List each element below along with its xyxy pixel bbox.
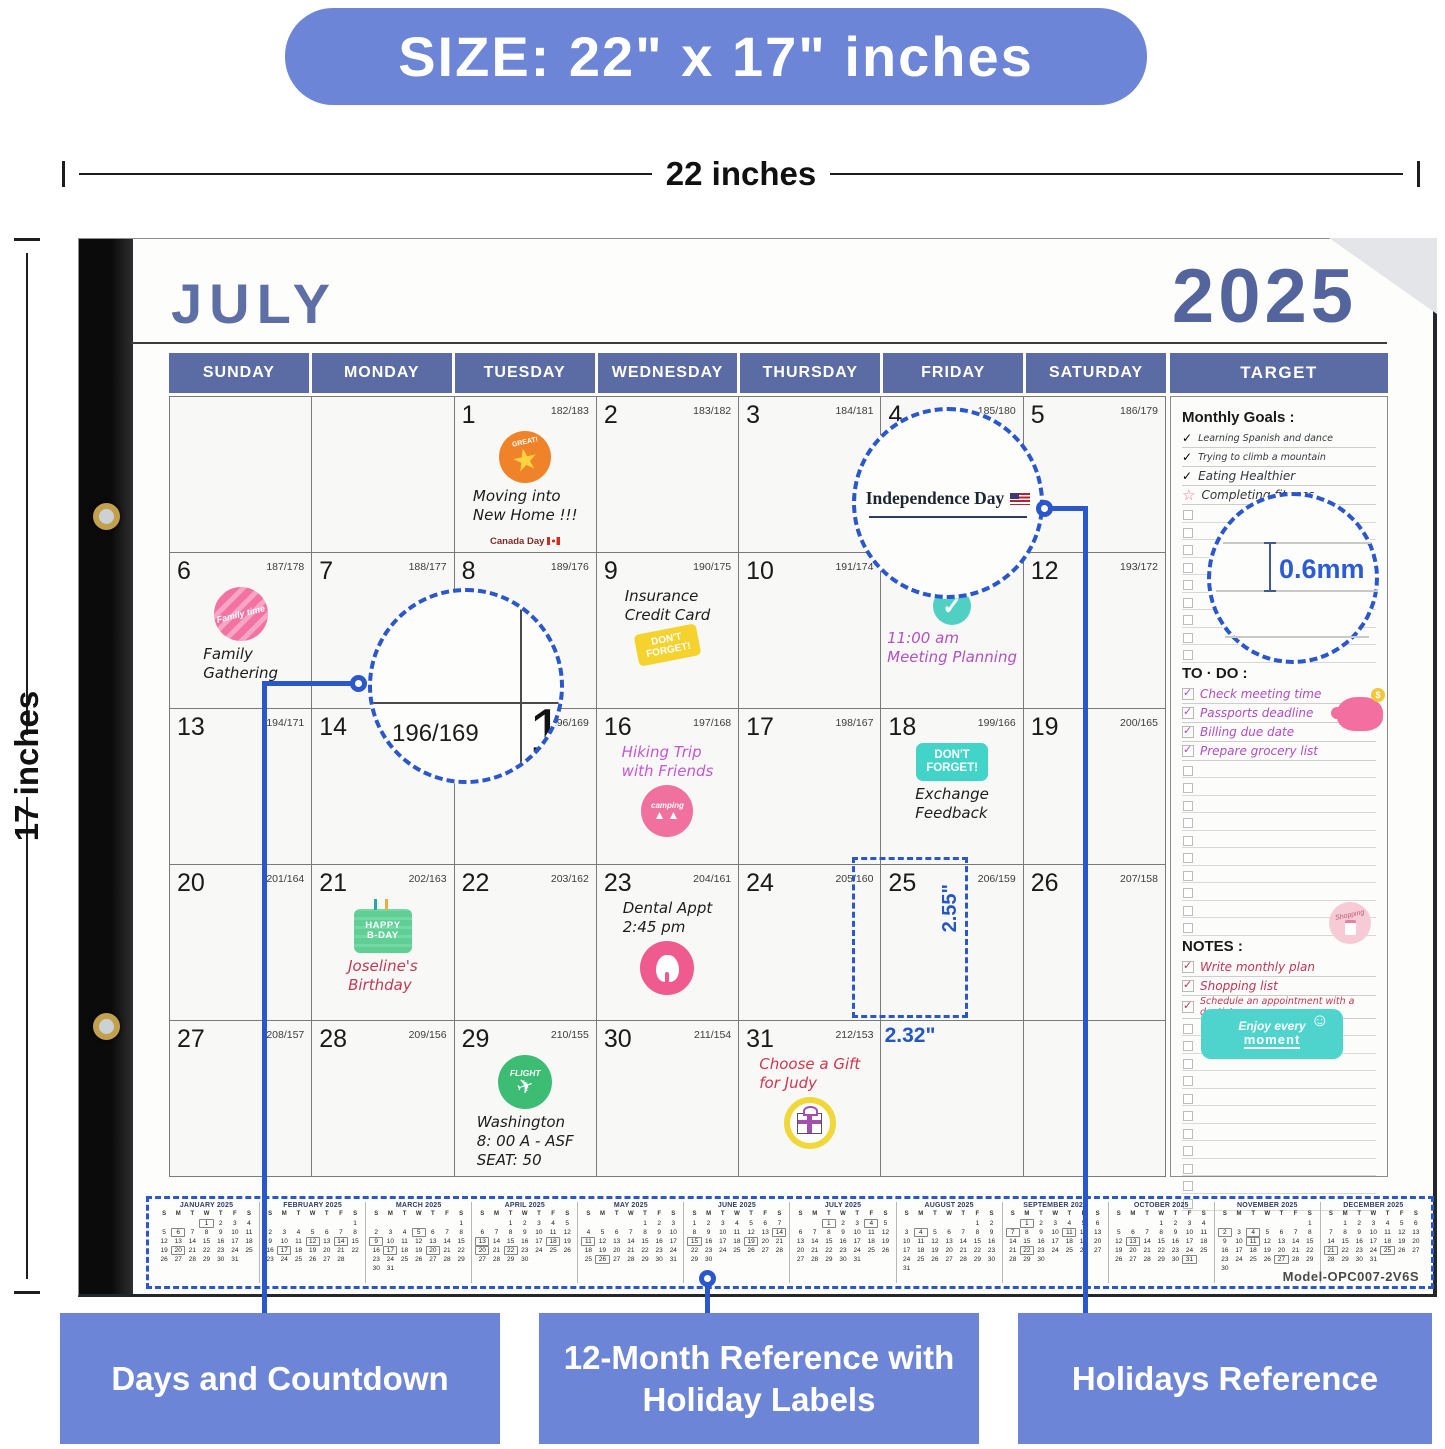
mini-date: 22 [1020,1246,1034,1255]
mini-date: 15 [348,1237,362,1246]
mini-date: 17 [228,1237,242,1246]
ruled-line [1225,636,1369,638]
mini-date: 14 [956,1237,970,1246]
width-dimension-label: 22 inches [666,155,816,193]
mini-date: 15 [1303,1237,1317,1246]
countdown-label: 200/165 [1120,717,1158,729]
ruler-line [26,253,28,735]
mini-date: 7 [440,1228,454,1237]
countdown-magnifier-circle: 196/169 16 [368,588,564,784]
mini-date: 25 [730,1246,744,1255]
mini-date: 28 [1006,1255,1020,1264]
mini-date: 2 [652,1219,666,1228]
mini-date: 24 [228,1246,242,1255]
mini-date: 24 [277,1255,291,1264]
countdown-label: 191/174 [835,561,873,573]
mini-month-title: JUNE 2025 [687,1202,786,1209]
mini-blank [581,1219,595,1228]
mini-date: 7 [1289,1228,1303,1237]
weekday-header-friday: FRIDAY [883,353,1023,393]
mini-dow: M [277,1210,291,1219]
mini-month-title: MAY 2025 [581,1202,680,1209]
mini-date: 9 [518,1228,532,1237]
mini-date: 6 [475,1228,489,1237]
mini-date: 12 [412,1237,426,1246]
mini-date: 22 [504,1246,518,1255]
mini-date: 27 [793,1255,807,1264]
mini-blank [475,1219,489,1228]
mini-date: 24 [666,1246,680,1255]
mini-date: 17 [1232,1246,1246,1255]
todo-item: ✓Prepare grocery list [1182,742,1376,761]
mini-date: 26 [1395,1246,1409,1255]
mini-date: 3 [532,1219,546,1228]
mini-date: 4 [291,1228,305,1237]
mini-date: 1 [1338,1219,1352,1228]
mini-date: 29 [638,1255,652,1264]
mini-date: 28 [185,1255,199,1264]
title-divider [131,342,1387,344]
mini-dow: S [984,1210,998,1219]
mini-date: 30 [214,1255,228,1264]
day-cell-18: 18199/166DON'TFORGET!ExchangeFeedback [881,709,1022,864]
day-cell-17: 17198/167 [739,709,880,864]
mini-date: 2 [369,1228,383,1237]
countdown-label: 198/167 [835,717,873,729]
mini-date: 17 [1048,1237,1062,1246]
mini-date: 11 [1197,1228,1211,1237]
callout-anchor-dot [350,675,367,692]
day-cell-empty [312,397,453,552]
mini-date: 20 [610,1246,624,1255]
mini-date: 27 [1091,1246,1105,1255]
day-cell-20: 20201/164 [170,865,311,1020]
mini-date: 14 [1289,1237,1303,1246]
mini-dow: M [595,1210,609,1219]
mini-date: 14 [1006,1237,1020,1246]
mini-blank [412,1219,426,1228]
mini-date: 2 [836,1219,850,1228]
checked-checkbox-icon: ✓ [1182,980,1194,992]
height-dimension: 17 inches [4,238,50,1294]
mini-date: 14 [1324,1237,1338,1246]
mini-date: 13 [426,1237,440,1246]
mini-month-title: DECEMBER 2025 [1324,1202,1423,1209]
mini-blank [1324,1219,1338,1228]
mini-date: 2 [702,1219,716,1228]
day-cell-5: 5186/179 [1024,397,1165,552]
mini-date: 23 [836,1246,850,1255]
mini-dow: W [624,1210,638,1219]
mini-dow: S [687,1210,701,1219]
width-dimension: 22 inches [62,156,1420,192]
mini-month-april: APRIL 2025SMTWTFS12345678910111213141516… [472,1202,578,1283]
mini-dow: T [1140,1210,1154,1219]
mini-date: 19 [560,1237,574,1246]
mini-date: 23 [518,1246,532,1255]
mini-date: 7 [772,1219,786,1228]
day-number: 12 [1031,557,1059,586]
empty-checkbox-line [1182,1071,1376,1089]
day-cell-29: 29210/155FLIGHT✈Washington8: 00 A - ASFS… [455,1021,596,1176]
mini-date: 2 [1218,1228,1232,1237]
mini-date: 14 [185,1237,199,1246]
mini-date: 16 [836,1237,850,1246]
model-number: Model-OPC007-2V6S [1283,1269,1419,1284]
mini-date: 12 [1260,1237,1274,1246]
mini-date: 30 [836,1255,850,1264]
mini-date: 20 [1126,1246,1140,1255]
callout-connector-line [262,681,354,686]
mini-date: 17 [850,1237,864,1246]
height-dimension-label: 17 inches [8,691,46,841]
day-number: 13 [177,713,205,742]
day-cell-27: 27208/157 [170,1021,311,1176]
mini-date: 4 [1246,1228,1260,1237]
mini-date: 30 [1218,1264,1232,1273]
mini-month-october: OCTOBER 2025SMTWTFS123456789101112131415… [1109,1202,1215,1283]
countdown-label: 207/158 [1120,873,1158,885]
mini-date: 11 [581,1237,595,1246]
event-line: Family [203,645,278,664]
mini-dow: S [454,1210,468,1219]
mini-dow: M [1020,1210,1034,1219]
enjoy-moment-sticker: Enjoy everymoment☺ [1201,1009,1343,1059]
mini-date: 22 [1338,1246,1352,1255]
mini-date: 27 [1409,1246,1423,1255]
mini-month-title: OCTOBER 2025 [1112,1202,1211,1209]
mini-date: 15 [199,1237,213,1246]
enjoy-text: Enjoy every [1238,1019,1305,1033]
mini-date: 4 [1380,1219,1394,1228]
mini-month-grid: SMTWTFS123456789101112131415161718192021… [1112,1210,1211,1264]
mini-date: 2 [984,1219,998,1228]
mini-dow: M [1232,1210,1246,1219]
mini-dow: W [1366,1210,1380,1219]
mini-blank [808,1219,822,1228]
mini-date: 29 [1303,1255,1317,1264]
twelve-month-reference-strip: JANUARY 2025SMTWTFS123456789101112131415… [146,1196,1434,1289]
event: InsuranceCredit CardDON'TFORGET! [597,587,738,661]
mini-date: 25 [1062,1246,1076,1255]
mini-date: 31 [1366,1255,1380,1264]
countdown-label: 186/179 [1120,405,1158,417]
mini-date: 25 [914,1255,928,1264]
mini-dow: F [546,1210,560,1219]
mini-date: 11 [864,1228,878,1237]
mini-date: 15 [1154,1237,1168,1246]
mini-date: 24 [850,1246,864,1255]
mini-blank [334,1219,348,1228]
mini-date: 11 [914,1237,928,1246]
countdown-label: 188/177 [409,561,447,573]
mini-date: 29 [504,1255,518,1264]
mini-date: 29 [1154,1255,1168,1264]
mini-date: 6 [426,1228,440,1237]
mini-month-march: MARCH 2025SMTWTFS12345678910111213141516… [366,1202,472,1283]
mini-date: 1 [1303,1219,1317,1228]
empty-checkbox-line [1182,1159,1376,1177]
dont-forget-yellow-icon: DON'TFORGET! [634,623,702,666]
mini-date: 16 [518,1237,532,1246]
day-number: 19 [1031,713,1059,742]
mini-date: 8 [1303,1228,1317,1237]
mini-date: 10 [277,1237,291,1246]
mini-dow: W [1260,1210,1274,1219]
mini-date: 12 [744,1228,758,1237]
mini-date: 6 [171,1228,185,1237]
mini-date: 19 [928,1246,942,1255]
mini-date: 12 [1395,1228,1409,1237]
mini-blank [1274,1219,1288,1228]
event-line: Credit Card [625,606,711,625]
mini-date: 15 [1338,1237,1352,1246]
mini-date: 13 [1274,1237,1288,1246]
independence-day-label: Independence Day [866,488,1005,509]
mini-dow: T [822,1210,836,1219]
mini-dow: S [157,1210,171,1219]
weekday-header-wednesday: WEDNESDAY [598,353,738,393]
mini-date: 26 [928,1255,942,1264]
cell-size-callout-rect: 2.55" [852,857,968,1018]
mini-date: 8 [1020,1228,1034,1237]
mini-date: 6 [320,1228,334,1237]
mini-dow: T [532,1210,546,1219]
mini-month-january: JANUARY 2025SMTWTFS123456789101112131415… [154,1202,260,1283]
mini-date: 28 [334,1255,348,1264]
mini-date: 7 [185,1228,199,1237]
mini-date: 17 [666,1237,680,1246]
mini-date: 6 [1409,1219,1423,1228]
day-number: 20 [177,869,205,898]
mini-date: 19 [157,1246,171,1255]
mini-date: 13 [1409,1228,1423,1237]
mini-date: 24 [383,1255,397,1264]
checked-checkbox-icon: ✓ [1182,1001,1194,1013]
mini-dow: S [772,1210,786,1219]
day-number: 29 [462,1025,490,1054]
day-number: 10 [746,557,774,586]
weekday-header-thursday: THURSDAY [740,353,880,393]
mini-dow: W [1048,1210,1062,1219]
mini-date: 16 [1352,1237,1366,1246]
day-cell-2: 2183/182 [597,397,738,552]
mini-date: 12 [560,1228,574,1237]
day-number: 3 [746,401,760,430]
mini-blank [277,1219,291,1228]
mini-dow: F [1395,1210,1409,1219]
mini-month-grid: SMTWTFS123456789101112131415161718192021… [793,1210,892,1264]
coin-icon: $ [1371,688,1385,702]
event-line: Moving into [473,487,578,506]
mini-blank [291,1219,305,1228]
mini-dow: T [426,1210,440,1219]
mini-date: 23 [702,1246,716,1255]
mini-date: 4 [1062,1219,1076,1228]
mini-date: 8 [970,1228,984,1237]
mini-date: 21 [489,1246,503,1255]
mini-date: 5 [744,1219,758,1228]
mini-dow: T [956,1210,970,1219]
mini-dow: T [716,1210,730,1219]
event-line: Hiking Trip [622,743,714,762]
mini-dow: S [560,1210,574,1219]
mini-date: 23 [984,1246,998,1255]
mini-dow: T [1034,1210,1048,1219]
mini-date: 27 [171,1255,185,1264]
mini-month-title: JULY 2025 [793,1202,892,1209]
countdown-label: 211/154 [694,1029,731,1041]
ruler-tick [62,161,65,187]
mini-dow: F [864,1210,878,1219]
mini-date: 8 [822,1228,836,1237]
mini-date: 18 [581,1246,595,1255]
mini-date: 28 [1140,1255,1154,1264]
countdown-label: 206/159 [978,873,1016,885]
notes-item: ✓Shopping list [1182,977,1376,996]
mini-date: 30 [652,1255,666,1264]
mini-blank [426,1219,440,1228]
mini-date: 14 [772,1228,786,1237]
mini-date: 10 [1232,1237,1246,1246]
mini-date: 13 [610,1237,624,1246]
mini-month-july: JULY 2025SMTWTFS123456789101112131415161… [790,1202,896,1283]
mini-date: 16 [984,1237,998,1246]
notes-section: NOTES :✓Write monthly plan✓Shopping list… [1182,938,1376,1212]
mini-dow: S [878,1210,892,1219]
mini-date: 21 [772,1237,786,1246]
mini-dow: S [1112,1210,1126,1219]
mini-date: 19 [595,1246,609,1255]
mini-date: 3 [1232,1228,1246,1237]
callout-connector-line [262,681,267,1314]
event-text: Washington8: 00 A - ASFSEAT: 50 [477,1113,574,1170]
mini-date: 23 [214,1246,228,1255]
mini-month-september: SEPTEMBER 2025SMTWTFS1234567891011121314… [1003,1202,1109,1283]
mini-dow: T [1274,1210,1288,1219]
mini-date: 22 [454,1246,468,1255]
ruler-line [79,173,652,175]
mini-date: 30 [702,1255,716,1264]
mini-date: 17 [383,1246,397,1255]
countdown-label: 210/155 [551,1029,589,1041]
mini-date: 6 [1274,1228,1288,1237]
flight-icon: FLIGHT✈ [498,1055,552,1109]
mini-date: 27 [475,1255,489,1264]
mini-month-title: SEPTEMBER 2025 [1006,1202,1105,1209]
mini-dow: F [228,1210,242,1219]
event-line: Feedback [915,804,989,823]
mini-date: 29 [822,1255,836,1264]
mini-date: 10 [666,1228,680,1237]
mini-date: 11 [1246,1237,1260,1246]
mini-blank [1260,1219,1274,1228]
day-number: 21 [319,869,347,898]
callout-connector-line [705,1285,710,1314]
mini-date: 11 [730,1228,744,1237]
mini-month-may: MAY 2025SMTWTFS1234567891011121314151617… [578,1202,684,1283]
cell-width-label: 2.32" [852,1024,968,1048]
ruled-line [1216,590,1378,592]
mini-blank [1140,1219,1154,1228]
mini-dow: F [652,1210,666,1219]
mini-month-february: FEBRUARY 2025SMTWTFS12345678910111213141… [260,1202,366,1283]
mini-month-grid: SMTWTFS123456789101112131415161718192021… [1006,1210,1105,1264]
mini-blank [1006,1219,1020,1228]
empty-checkbox-line [1182,796,1376,814]
checked-checkbox-icon: ✓ [1182,726,1194,738]
mini-blank [489,1219,503,1228]
bday-text: HAPPYB-DAY [365,921,400,941]
camping-icon: camping▲▲ [641,785,693,837]
mini-date: 9 [1168,1228,1182,1237]
mini-date: 7 [1006,1228,1020,1237]
mini-date: 24 [900,1255,914,1264]
mini-date: 31 [900,1264,914,1273]
event-line: 11:00 am [887,629,1017,648]
mini-date: 5 [928,1228,942,1237]
mini-date: 18 [1380,1237,1394,1246]
holiday-label-row: Independence Day [866,488,1031,509]
mini-date: 9 [1034,1228,1048,1237]
event-text: Moving intoNew Home !!! [473,487,578,525]
mini-date: 4 [914,1228,928,1237]
day-number: 24 [746,869,774,898]
event-line: Washington [477,1113,574,1132]
mini-date: 16 [214,1237,228,1246]
mini-blank [1218,1219,1232,1228]
mini-date: 21 [1324,1246,1338,1255]
holiday-note: Canada Day [455,536,596,547]
mini-date: 4 [242,1219,256,1228]
mini-dow: S [1091,1210,1105,1219]
monthly-goals-item: ✓Eating Healthier [1182,467,1376,486]
mini-date: 25 [581,1255,595,1264]
countdown-label: 189/176 [551,561,589,573]
empty-checkbox-line [1182,848,1376,866]
gift-box [797,1113,822,1134]
mini-date: 17 [900,1246,914,1255]
weekday-header-row: SUNDAYMONDAYTUESDAYWEDNESDAYTHURSDAYFRID… [169,353,1166,393]
mini-date: 14 [489,1237,503,1246]
mini-date: 18 [914,1246,928,1255]
mini-date: 27 [758,1246,772,1255]
mini-date: 2 [518,1219,532,1228]
mini-date: 9 [702,1228,716,1237]
mini-dow: T [1380,1210,1394,1219]
mini-date: 4 [546,1219,560,1228]
mini-dow: T [638,1210,652,1219]
mini-date: 17 [532,1237,546,1246]
mini-date: 17 [1182,1237,1196,1246]
mini-date: 22 [822,1246,836,1255]
mini-date: 21 [1006,1246,1020,1255]
mini-date: 26 [412,1255,426,1264]
mini-date: 10 [1366,1228,1380,1237]
mini-blank [942,1219,956,1228]
empty-checkbox-line [1182,813,1376,831]
countdown-label: 183/182 [693,405,731,417]
mini-date: 28 [624,1255,638,1264]
notes-item: ✓Write monthly plan [1182,958,1376,977]
mini-date: 22 [638,1246,652,1255]
day-number: 14 [319,713,347,742]
mini-date: 26 [157,1255,171,1264]
mini-date: 13 [793,1237,807,1246]
mini-dow: F [1289,1210,1303,1219]
mini-date: 25 [1246,1255,1260,1264]
monthly-goals-item-text: Trying to climb a mountain [1198,452,1326,463]
